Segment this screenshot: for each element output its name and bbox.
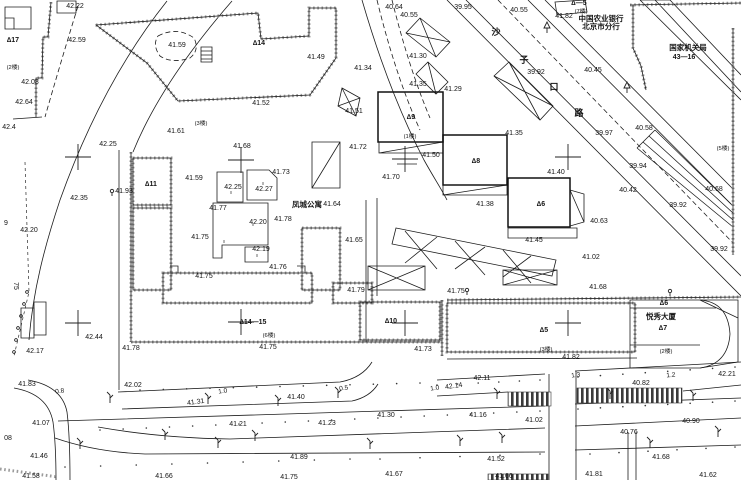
- map-line: [36, 2, 51, 117]
- road-width-label: 1.0: [218, 387, 228, 395]
- survey-map: 42.2242.5941.5942.0842.6442.442.2541.614…: [0, 0, 741, 480]
- road-name-char: 口: [549, 82, 558, 92]
- road-dot: [215, 424, 217, 426]
- road-dot: [447, 414, 449, 416]
- benchmark-icon: [668, 289, 671, 296]
- road-dot: [419, 457, 421, 459]
- road-dot: [314, 459, 316, 461]
- benchmark-icon: [110, 189, 113, 196]
- floor-label: (6楼): [263, 331, 276, 339]
- road-dot: [379, 458, 381, 460]
- misc-label: 9: [4, 220, 8, 227]
- road-dot: [135, 464, 137, 466]
- building-id-label: ∆17: [7, 37, 19, 44]
- elevation-label: 41.52: [252, 100, 270, 107]
- elevation-label: 41.35: [409, 81, 427, 88]
- road-dot: [354, 418, 356, 420]
- elevation-label: 40.42: [619, 187, 637, 194]
- map-line: [503, 270, 557, 285]
- elevation-label: 41.75: [447, 288, 465, 295]
- fence-post-icon: [15, 339, 18, 342]
- elevation-label: 41.52: [487, 456, 505, 463]
- elevation-label: 42.19: [252, 246, 270, 253]
- road-dot: [667, 404, 669, 406]
- storey-mark: II: [252, 222, 255, 227]
- floor-label: (2楼): [660, 347, 673, 355]
- elevation-label: 40.45: [584, 67, 602, 74]
- road-dot: [622, 373, 624, 375]
- map-line: [163, 273, 312, 303]
- elevation-label: 41.30: [409, 53, 427, 60]
- road-dot: [618, 452, 620, 454]
- elevation-label: 41.83: [18, 381, 36, 388]
- map-line: [362, 0, 447, 200]
- grid-cross-icon: [228, 147, 254, 173]
- road-dot: [577, 408, 579, 410]
- fence-post-icon: [17, 327, 20, 330]
- grid-cross-icon: [555, 310, 581, 336]
- elevation-label: 39.92: [527, 69, 545, 76]
- elevation-label: 41.40: [287, 394, 305, 401]
- map-line: [633, 5, 646, 90]
- road-dot: [419, 382, 421, 384]
- road-width-label: 1.3: [571, 371, 581, 379]
- road-width-label: 1.0: [430, 384, 440, 392]
- street-lamp-icon: [275, 395, 281, 406]
- map-line: [118, 362, 372, 392]
- elevation-label: 40.63: [590, 218, 608, 225]
- elevation-label: 41.70: [382, 174, 400, 181]
- road-dot: [423, 415, 425, 417]
- place-name-label: 北京市分行: [582, 21, 620, 31]
- road-name-char: 路: [574, 107, 584, 118]
- elevation-label: 41.73: [414, 346, 432, 353]
- street-lamp-icon: [367, 438, 373, 449]
- elevation-label: 41.16: [469, 412, 487, 419]
- elevation-label: 42.17: [26, 348, 44, 355]
- elevation-label: 41.58: [22, 473, 40, 480]
- road-dot: [207, 462, 209, 464]
- road-dot: [689, 402, 691, 404]
- elevation-label: 41.78: [274, 216, 292, 223]
- map-line: [628, 432, 636, 480]
- map-line: [630, 300, 730, 368]
- road-dot: [100, 465, 102, 467]
- elevation-label: 42.25: [224, 184, 242, 191]
- grid-cross-icon: [65, 144, 91, 170]
- road-dot: [192, 425, 194, 427]
- elevation-label: 39.97: [595, 130, 613, 137]
- road-dot: [233, 387, 235, 389]
- elevation-label: 42.22: [66, 3, 84, 10]
- road-dot: [396, 383, 398, 385]
- building-id-label: ∆6: [537, 201, 545, 208]
- road-dot: [64, 466, 66, 468]
- road-width-label: 0.8: [55, 387, 65, 395]
- map-line: [201, 47, 212, 62]
- elevation-label: 42.20: [20, 227, 38, 234]
- floor-label: (1楼): [404, 132, 417, 140]
- misc-label: 75: [12, 282, 19, 290]
- benchmark-icon: [465, 288, 468, 295]
- elevation-label: 41.59: [168, 42, 186, 49]
- elevation-label: 41.07: [32, 420, 50, 427]
- elevation-label: 41.75: [191, 234, 209, 241]
- elevation-label: 42.25: [99, 141, 117, 148]
- street-lamp-icon: [107, 392, 113, 403]
- elevation-label: 39.92: [710, 246, 728, 253]
- road-dot: [600, 375, 602, 377]
- map-line: [14, 162, 29, 356]
- floor-label: (3楼): [195, 119, 208, 127]
- building-id-label: ∆14: [253, 40, 265, 47]
- elevation-label: 41.75: [280, 474, 298, 480]
- building-id-label: ∆—5: [571, 0, 586, 7]
- road-dot: [600, 407, 602, 409]
- road-dot: [689, 369, 691, 371]
- elevation-label: 41.76: [269, 264, 287, 271]
- map-line: [498, 0, 733, 243]
- map-line: [549, 371, 576, 480]
- street-lamp-icon: [715, 426, 721, 437]
- map-line: [700, 300, 738, 368]
- road-dot: [303, 385, 305, 387]
- elevation-label: 41.40: [547, 169, 565, 176]
- elevation-label: 41.73: [272, 169, 290, 176]
- building-id-label: ∆9: [407, 114, 415, 121]
- elevation-label: 42.21: [718, 371, 736, 378]
- map-line: [13, 117, 42, 119]
- misc-label: 08: [4, 435, 12, 442]
- elevation-label: 41.51: [345, 108, 363, 115]
- road-dot: [712, 401, 714, 403]
- road-dot: [734, 366, 736, 368]
- elevation-label: 41.77: [209, 205, 227, 212]
- elevation-label: 41.65: [345, 237, 363, 244]
- storey-mark: II: [262, 181, 265, 186]
- map-line: [405, 231, 531, 283]
- elevation-label: 41.82: [562, 354, 580, 361]
- road-dot: [705, 448, 707, 450]
- elevation-label: 41.46: [30, 453, 48, 460]
- elevation-label: 41.75: [195, 273, 213, 280]
- elevation-label: 42.64: [15, 99, 33, 106]
- grid-cross-icon: [65, 310, 91, 336]
- elevation-label: 40.58: [635, 125, 653, 132]
- map-line: [447, 358, 637, 359]
- elevation-label: 42.4: [2, 124, 16, 131]
- grid-cross-icon: [555, 144, 581, 170]
- elevation-label: 41.68: [233, 143, 251, 150]
- map-line: [133, 208, 171, 290]
- road-dot: [589, 453, 591, 455]
- fence-post-icon: [13, 351, 16, 354]
- road-dot: [278, 460, 280, 462]
- road-width-label: 1.2: [666, 372, 676, 380]
- elevation-label: 41.64: [323, 201, 341, 208]
- road-name-char: 沙: [491, 27, 500, 37]
- map-line: [443, 185, 507, 195]
- map-line: [302, 228, 340, 290]
- map-line: [29, 1, 167, 340]
- road-dot: [146, 427, 148, 429]
- elevation-label: 41.31: [187, 398, 205, 407]
- map-line: [570, 190, 584, 226]
- elevation-label: 40.82: [632, 380, 650, 387]
- map-line: [633, 5, 646, 90]
- road-dot: [676, 449, 678, 451]
- road-dot: [163, 389, 165, 391]
- street-lamp-icon: [162, 429, 168, 440]
- map-line: [577, 388, 682, 403]
- road-dot: [539, 379, 541, 381]
- road-dot: [284, 421, 286, 423]
- tree-icon: [544, 22, 550, 33]
- road-dot: [622, 406, 624, 408]
- elevation-label: 41.62: [699, 472, 717, 479]
- road-dot: [169, 426, 171, 428]
- tree-icon: [624, 82, 630, 93]
- building-id-label: ∆6: [660, 300, 668, 307]
- road-dot: [242, 461, 244, 463]
- street-lamp-icon: [494, 388, 500, 399]
- road-dot: [459, 456, 461, 458]
- road-dot: [99, 429, 101, 431]
- map-line: [360, 302, 440, 340]
- elevation-label: 41.59: [185, 175, 203, 182]
- map-line: [637, 130, 733, 227]
- elevation-label: 41.35: [505, 130, 523, 137]
- elevation-label: 41.02: [525, 417, 543, 424]
- building-id-label: ∆10: [385, 318, 397, 325]
- road-dot: [261, 422, 263, 424]
- floor-label: (3楼): [540, 345, 553, 353]
- street-lamp-icon: [647, 437, 653, 448]
- map-line: [416, 62, 448, 94]
- map-line: [133, 208, 171, 290]
- fence-post-icon: [26, 291, 29, 294]
- map-line: [508, 392, 551, 406]
- elevation-label: 40.55: [510, 7, 528, 14]
- map-line: [312, 142, 340, 188]
- elevation-label: 41.93: [115, 188, 133, 195]
- elevation-label: 41.02: [582, 254, 600, 261]
- road-dot: [539, 453, 541, 455]
- elevation-label: 41.61: [167, 128, 185, 135]
- building-id-label: 43—16: [673, 54, 696, 61]
- elevation-label: 42.08: [21, 79, 39, 86]
- street-lamp-icon: [457, 435, 463, 446]
- map-line: [98, 418, 741, 439]
- storey-mark: II: [230, 190, 233, 195]
- map-line: [45, 6, 78, 117]
- road-dot: [539, 410, 541, 412]
- street-lamp-icon: [205, 393, 211, 404]
- elevation-label: 41.68: [652, 454, 670, 461]
- road-dot: [516, 411, 518, 413]
- map-line: [392, 228, 556, 276]
- elevation-label: 39.94: [629, 163, 647, 170]
- road-dot: [647, 450, 649, 452]
- road-dot: [349, 458, 351, 460]
- elevation-label: 42.02: [124, 382, 142, 389]
- elevation-label: 41.30: [377, 412, 395, 419]
- road-dot: [498, 381, 500, 383]
- street-lamp-icon: [499, 432, 505, 443]
- place-name-label: 凤城公寓: [292, 199, 322, 209]
- road-dot: [209, 387, 211, 389]
- map-line: [5, 18, 14, 29]
- map-line: [368, 266, 425, 290]
- road-dot: [373, 383, 375, 385]
- elevation-label: 41.89: [290, 454, 308, 461]
- elevation-label: 41.79: [347, 287, 365, 294]
- elevation-label: 42.27: [255, 186, 273, 193]
- road-width-label: 0.5: [339, 384, 349, 392]
- map-line: [96, 8, 336, 101]
- elevation-label: 42.11: [474, 375, 491, 382]
- elevation-label: 41.75: [259, 344, 277, 351]
- map-line: [377, 0, 420, 130]
- elevation-label: 41.45: [525, 237, 543, 244]
- elevation-label: 42.44: [85, 334, 103, 341]
- elevation-label: 39.95: [454, 4, 472, 11]
- road-dot: [122, 428, 124, 430]
- elevation-label: 39.92: [669, 202, 687, 209]
- map-line: [302, 228, 340, 290]
- elevation-label: 41.66: [155, 473, 173, 480]
- street-lamp-icon: [252, 430, 258, 441]
- road-dot: [400, 416, 402, 418]
- elevation-label: 41.23: [318, 420, 336, 427]
- elevation-label: 41.29: [444, 86, 462, 93]
- floor-label: (5楼): [717, 144, 730, 152]
- storey-mark: II: [223, 239, 226, 244]
- elevation-label: 41.72: [349, 144, 367, 151]
- elevation-label: 41.38: [476, 201, 494, 208]
- elevation-label: 41.34: [354, 65, 372, 72]
- elevation-label: 42.59: [68, 37, 86, 44]
- map-line: [14, 388, 56, 480]
- place-name-label: 悦秀大厦: [646, 311, 676, 321]
- elevation-label: 41.81: [585, 471, 603, 478]
- road-dot: [493, 412, 495, 414]
- road-dot: [279, 386, 281, 388]
- map-line: [360, 302, 440, 340]
- elevation-label: 41.68: [589, 284, 607, 291]
- road-dot: [186, 388, 188, 390]
- building-id-label: ∆8: [472, 158, 480, 165]
- road-dot: [734, 446, 736, 448]
- map-line: [545, 0, 733, 189]
- road-dot: [171, 463, 173, 465]
- road-dot: [712, 368, 714, 370]
- map-line: [55, 438, 741, 454]
- elevation-label: 41.49: [307, 54, 325, 61]
- fence-post-icon: [23, 303, 26, 306]
- elevation-label: 41.66: [495, 473, 513, 480]
- elevation-label: 41.67: [385, 471, 403, 478]
- road-dot: [519, 380, 521, 382]
- road-dot: [644, 372, 646, 374]
- building-id-label: ∆11: [145, 181, 157, 188]
- road-dot: [644, 405, 646, 407]
- street-lamp-icon: [77, 438, 83, 449]
- elevation-label: 42.14: [445, 382, 463, 391]
- elevation-label: 41.82: [555, 13, 573, 20]
- road-dot: [734, 400, 736, 402]
- road-dot: [256, 386, 258, 388]
- building-id-label: ∆14—15: [240, 319, 267, 326]
- map-linework: [0, 0, 741, 480]
- place-name-label: 国家机关局: [669, 42, 707, 52]
- elevation-label: 42.35: [70, 195, 88, 202]
- building-id-label: ∆7: [659, 325, 667, 332]
- floor-label: (2楼): [7, 63, 20, 71]
- road-dot: [326, 385, 328, 387]
- map-line: [163, 273, 312, 303]
- elevation-label: 40.76: [620, 429, 638, 436]
- storey-mark: II: [256, 253, 259, 258]
- elevation-label: 40.68: [705, 186, 723, 193]
- elevation-label: 40.64: [385, 4, 403, 11]
- elevation-label: 41.50: [422, 152, 440, 159]
- elevation-label: 41.78: [122, 345, 140, 352]
- road-dot: [477, 382, 479, 384]
- map-line: [406, 18, 450, 57]
- elevation-label: 41.21: [229, 421, 247, 428]
- elevation-label: 40.90: [682, 418, 700, 425]
- map-line: [34, 302, 46, 335]
- map-labels: 42.2242.5941.5942.0842.6442.442.2541.614…: [2, 0, 736, 480]
- elevation-label: 40.55: [400, 12, 418, 19]
- road-dot: [308, 420, 310, 422]
- road-dot: [349, 384, 351, 386]
- road-name-char: 子: [519, 55, 528, 65]
- building-id-label: ∆5: [540, 327, 548, 334]
- road-dot: [139, 389, 141, 391]
